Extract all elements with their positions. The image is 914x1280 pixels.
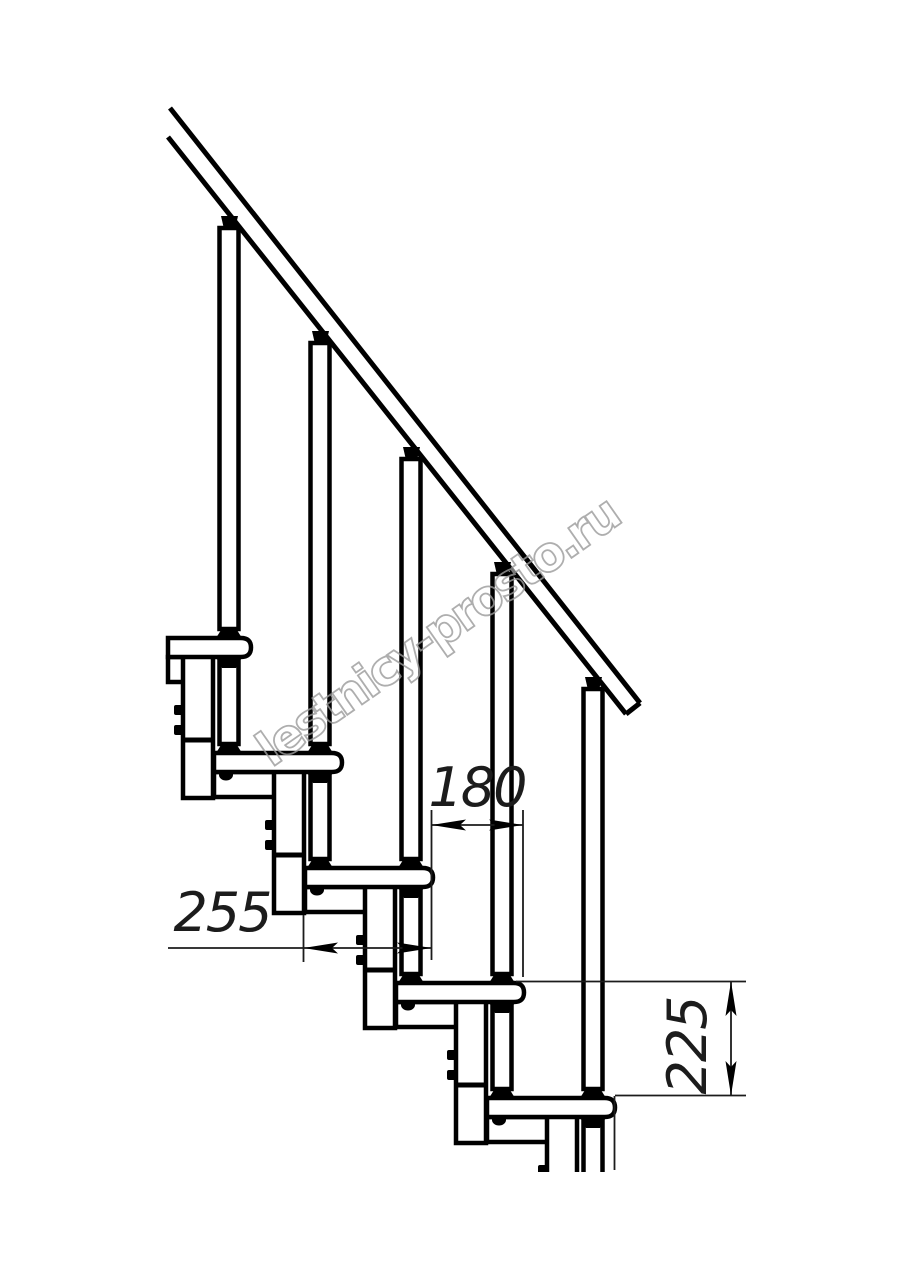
bolt: [356, 935, 366, 945]
drawing-cutoff-mask: [430, 1172, 720, 1280]
support-column: [274, 771, 304, 913]
dimension-180-label: 180: [428, 756, 525, 819]
dimension-255-label: 255: [173, 881, 270, 944]
baluster-rail-fastener: [221, 216, 238, 229]
through-post-4: [490, 1002, 514, 1089]
through-post-3: [399, 887, 423, 974]
drawing-canvas: 180 255 225 lestnicy-prosto.ru: [0, 0, 914, 1280]
tread-4: [396, 983, 524, 1002]
bolt: [447, 1050, 457, 1060]
staircase-technical-drawing: 180 255 225 lestnicy-prosto.ru: [0, 0, 914, 1280]
bolt: [174, 725, 184, 735]
support-column: [456, 1001, 486, 1143]
through-post-1: [217, 657, 241, 744]
tread-5: [487, 1098, 615, 1117]
support-column: [365, 886, 395, 1028]
tread-3: [305, 868, 433, 887]
bolt: [265, 840, 275, 850]
support-column: [183, 656, 213, 798]
tread-1: [168, 638, 251, 657]
dimension-225-label: 225: [656, 997, 719, 1094]
bolt: [174, 705, 184, 715]
baluster-5: [580, 677, 606, 1098]
bolt: [265, 820, 275, 830]
baluster-1: [216, 216, 242, 638]
bolt: [447, 1070, 457, 1080]
through-post-2: [308, 772, 332, 859]
bolt: [356, 955, 366, 965]
